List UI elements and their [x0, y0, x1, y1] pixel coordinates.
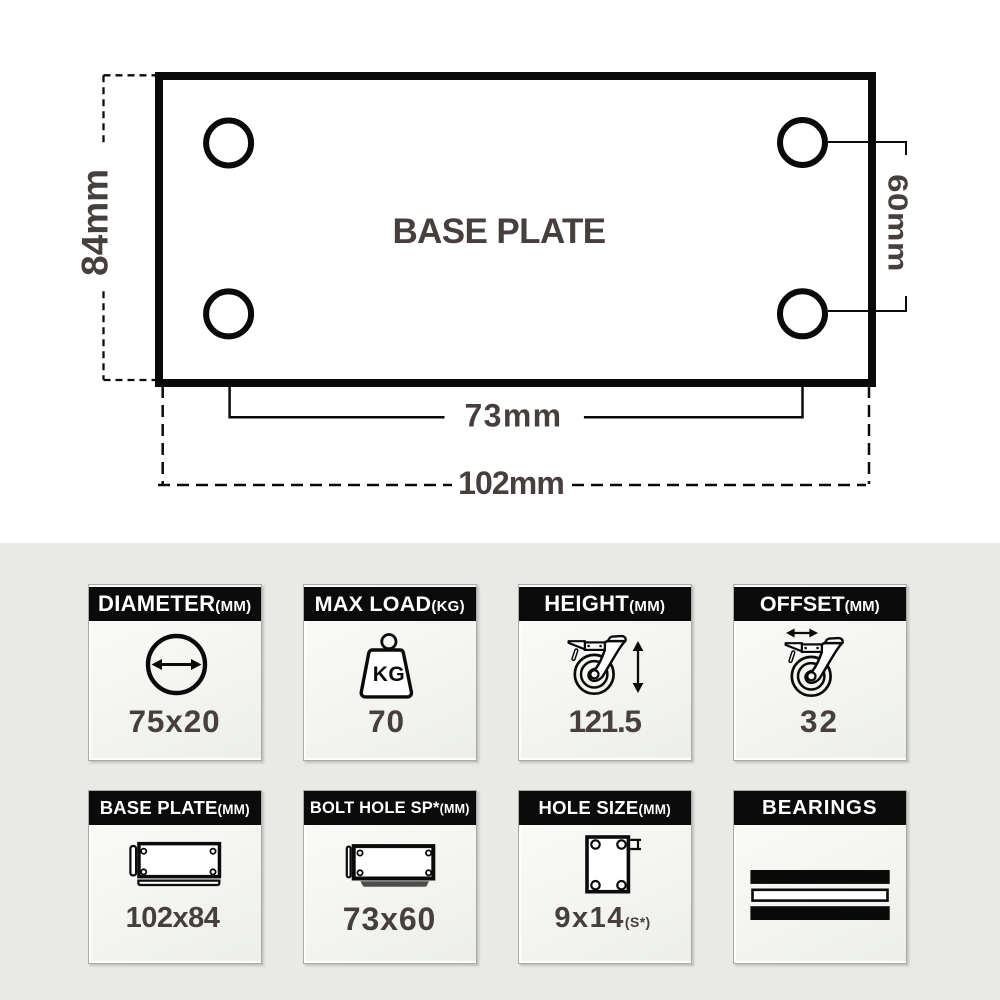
- svg-text:102mm: 102mm: [458, 465, 564, 501]
- svg-text:BASE PLATE: BASE PLATE: [392, 212, 605, 251]
- svg-text:60mm: 60mm: [882, 174, 913, 272]
- svg-text:73mm: 73mm: [464, 398, 562, 434]
- svg-text:KG: KG: [373, 663, 406, 686]
- svg-text:84mm: 84mm: [75, 169, 116, 276]
